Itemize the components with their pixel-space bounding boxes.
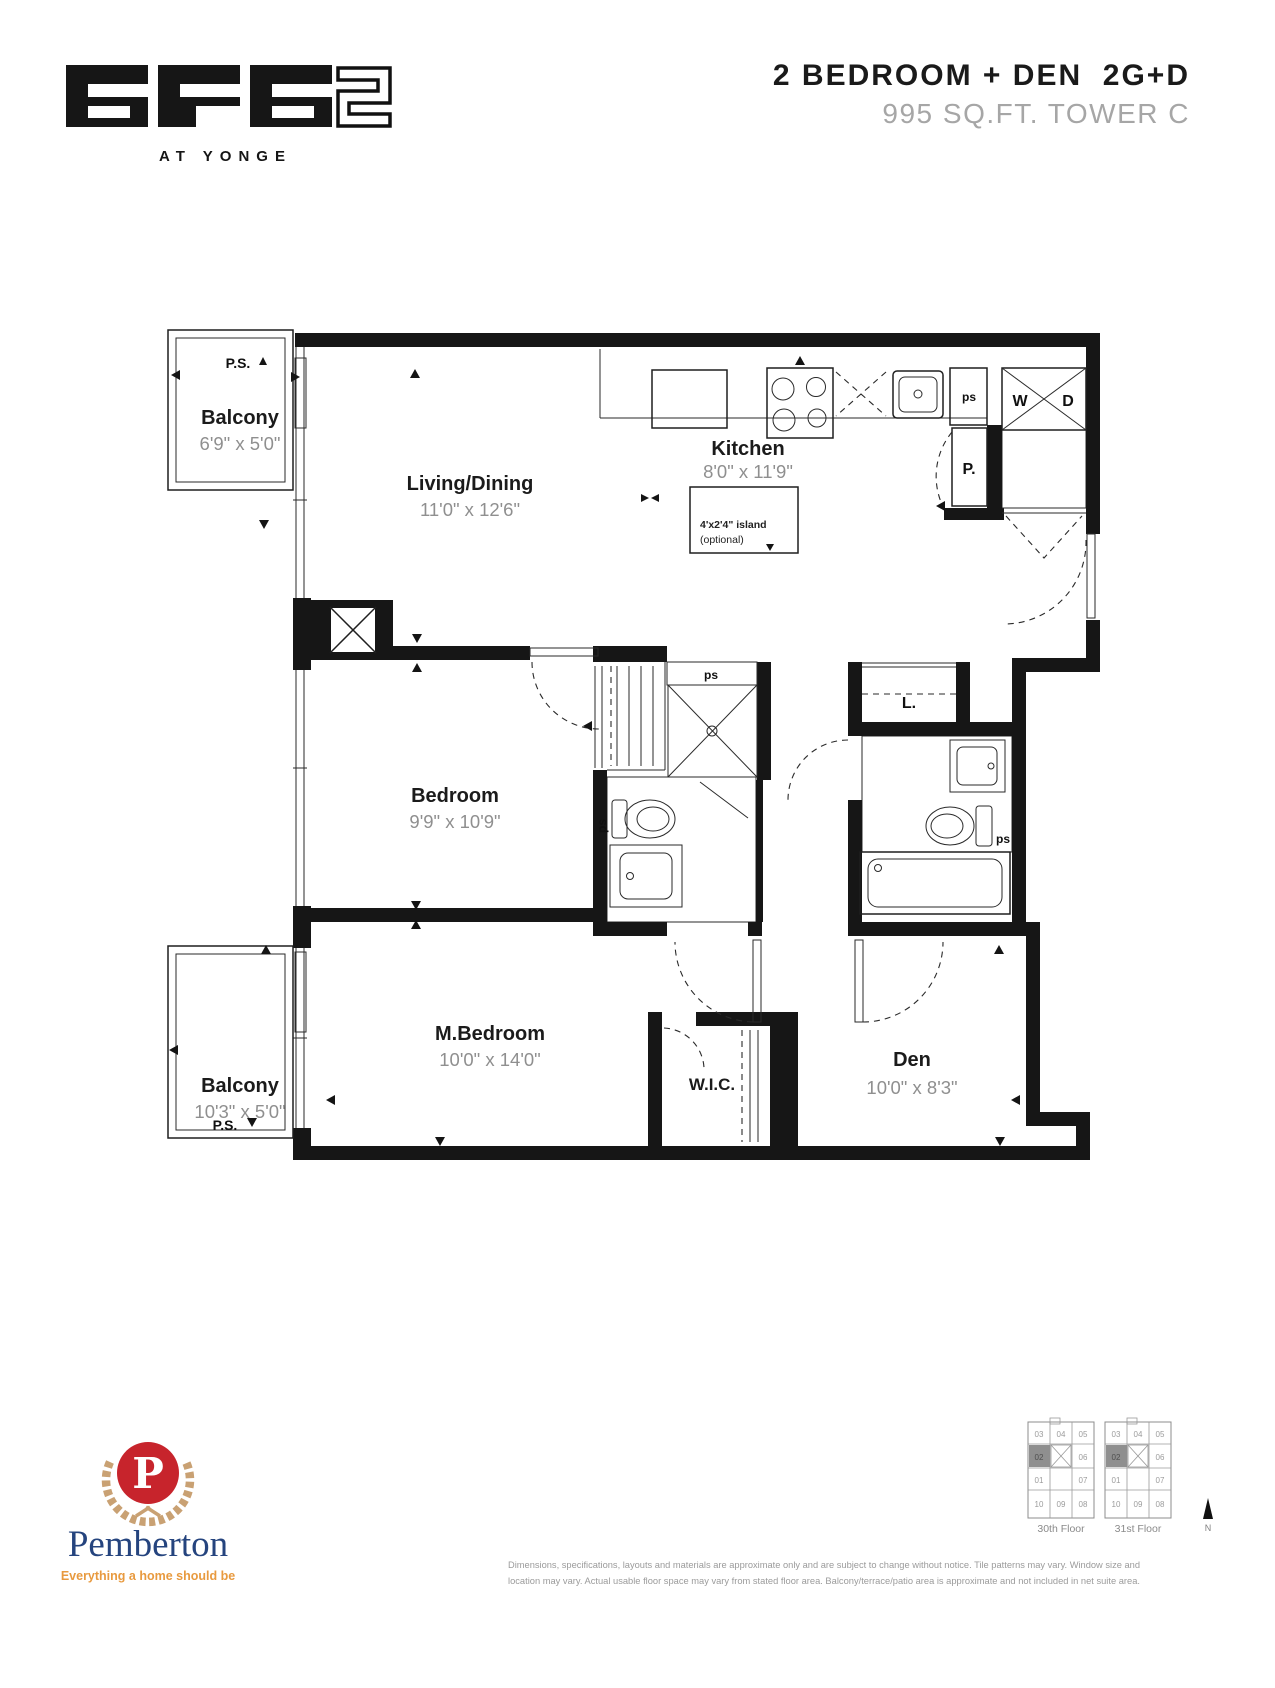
unit-05: 05 — [1079, 1430, 1088, 1439]
builder-name: Pemberton — [68, 1524, 228, 1565]
window-glass — [293, 347, 307, 1128]
pipe-shaft-label: ps — [996, 832, 1010, 846]
linen-label: L. — [902, 695, 916, 712]
disclaimer-line-1: Dimensions, specifications, layouts and … — [508, 1560, 1140, 1570]
monogram-letter: P — [132, 1449, 164, 1498]
ps-bottom-label: P.S. — [213, 1117, 238, 1133]
linen-closet: L. — [862, 663, 956, 712]
unit-06: 06 — [1079, 1453, 1088, 1462]
balcony-top-dims: 6'9" x 5'0" — [200, 433, 281, 454]
unit-08: 08 — [1156, 1500, 1165, 1509]
disclaimer: Dimensions, specifications, layouts and … — [508, 1560, 1140, 1586]
north-arrow: N — [1203, 1498, 1213, 1533]
keyplan-31st: 03 04 05 02 06 01 07 10 09 08 31st Floor — [1105, 1418, 1171, 1535]
north-label: N — [1205, 1523, 1212, 1533]
unit-01: 01 — [1112, 1476, 1121, 1485]
bedroom-closet — [595, 662, 665, 770]
bathroom2: ps — [788, 740, 1010, 914]
room-labels: P.S. Balcony 6'9" x 5'0" Living/Dining 1… — [194, 355, 957, 1133]
unit-09: 09 — [1057, 1500, 1066, 1509]
den-name: Den — [893, 1049, 931, 1071]
kitchen-island: 4'x2'4" island (optional) — [690, 487, 798, 553]
fridge — [652, 370, 727, 428]
master-dims: 10'0" x 14'0" — [439, 1049, 540, 1070]
unit-04: 04 — [1057, 1430, 1066, 1439]
laundry-floor-tile — [1002, 430, 1086, 508]
unit-10: 10 — [1112, 1500, 1121, 1509]
living-name: Living/Dining — [407, 473, 534, 495]
hall-doors — [675, 940, 943, 1022]
logo-tagline: AT YONGE — [159, 148, 292, 165]
balcony-top-name: Balcony — [201, 407, 280, 429]
unit-01: 01 — [1035, 1476, 1044, 1485]
island-label-2: (optional) — [700, 534, 744, 546]
kitchen-name: Kitchen — [711, 438, 784, 460]
balcony-bottom-dims: 10'3" x 5'0" — [194, 1101, 285, 1122]
entry-door — [1006, 534, 1095, 624]
pipe-shaft-label: ps — [704, 668, 718, 682]
unit-06: 06 — [1156, 1453, 1165, 1462]
shower — [668, 685, 757, 777]
bathtub — [860, 852, 1010, 914]
kitchen-sink — [893, 371, 943, 418]
header-titles: 2 BEDROOM + DEN 2G+D 995 SQ.FT. TOWER C — [773, 59, 1190, 129]
living-dims: 11'0" x 12'6" — [420, 499, 520, 520]
pipe-shaft-label: ps — [962, 390, 976, 404]
unit-05: 05 — [1156, 1430, 1165, 1439]
bedroom-dims: 9'9" x 10'9" — [409, 811, 500, 832]
vanity-sink — [950, 740, 1005, 792]
bedroom-door — [530, 648, 599, 729]
unit-02: 02 — [1112, 1453, 1121, 1462]
kitchen-counter: ps — [600, 349, 987, 438]
unit-02: 02 — [1035, 1453, 1044, 1462]
unit-10: 10 — [1035, 1500, 1044, 1509]
floor-caption-31: 31st Floor — [1115, 1523, 1162, 1535]
wic-name: W.I.C. — [689, 1075, 735, 1094]
kitchen-dims: 8'0" x 11'9" — [703, 461, 793, 482]
unit-09: 09 — [1134, 1500, 1143, 1509]
bedroom-name: Bedroom — [411, 785, 499, 807]
sheet-svg: AT YONGE 2 BEDROOM + DEN 2G+D 995 SQ.FT.… — [0, 0, 1275, 1688]
island-label-1: 4'x2'4" island — [700, 519, 767, 531]
floorplan: ps P. W D 4'x2'4" island (optional) — [168, 330, 1100, 1160]
ps-top-label: P.S. — [226, 355, 251, 371]
page-title: 2 BEDROOM + DEN 2G+D — [773, 59, 1190, 92]
disclaimer-line-2: location may vary. Actual usable floor s… — [508, 1576, 1140, 1586]
dryer-label: D — [1062, 393, 1074, 410]
elevator-core — [1128, 1445, 1148, 1467]
structural-column — [330, 607, 376, 653]
floorplan-sheet: AT YONGE 2 BEDROOM + DEN 2G+D 995 SQ.FT.… — [0, 0, 1275, 1688]
stove — [767, 368, 833, 438]
bathroom2-floor-tile — [862, 736, 1012, 852]
unit-07: 07 — [1079, 1476, 1088, 1485]
toilet — [612, 800, 675, 838]
unit-03: 03 — [1112, 1430, 1121, 1439]
unit-04: 04 — [1134, 1430, 1143, 1439]
unit-08: 08 — [1079, 1500, 1088, 1509]
builder-tagline: Everything a home should be — [61, 1569, 235, 1583]
balcony-bottom-name: Balcony — [201, 1075, 280, 1097]
pipe-shaft-label: ps — [595, 819, 609, 833]
master-name: M.Bedroom — [435, 1023, 545, 1045]
den-dims: 10'0" x 8'3" — [866, 1077, 957, 1098]
pemberton-logo: P Pemberton Everything a home should be — [61, 1442, 235, 1583]
vanity-sink — [610, 845, 682, 907]
logo-numeral-2 — [338, 68, 390, 126]
unit-07: 07 — [1156, 1476, 1165, 1485]
north-arrow-icon — [1203, 1498, 1213, 1519]
page-subtitle: 995 SQ.FT. TOWER C — [882, 98, 1190, 129]
bathroom1: ps ps — [595, 662, 757, 907]
unit-03: 03 — [1035, 1430, 1044, 1439]
toilet — [926, 806, 992, 846]
era2-logo: AT YONGE — [66, 65, 390, 165]
pantry-label: P. — [962, 461, 975, 478]
washer-label: W — [1012, 393, 1028, 410]
pantry: P. — [936, 428, 987, 506]
elevator-core — [1051, 1445, 1071, 1467]
keyplan-30th: 03 04 05 02 06 01 07 10 09 08 30th Floor — [1028, 1418, 1094, 1535]
washer-dryer: W D — [1002, 368, 1086, 558]
floor-caption-30: 30th Floor — [1037, 1523, 1085, 1535]
